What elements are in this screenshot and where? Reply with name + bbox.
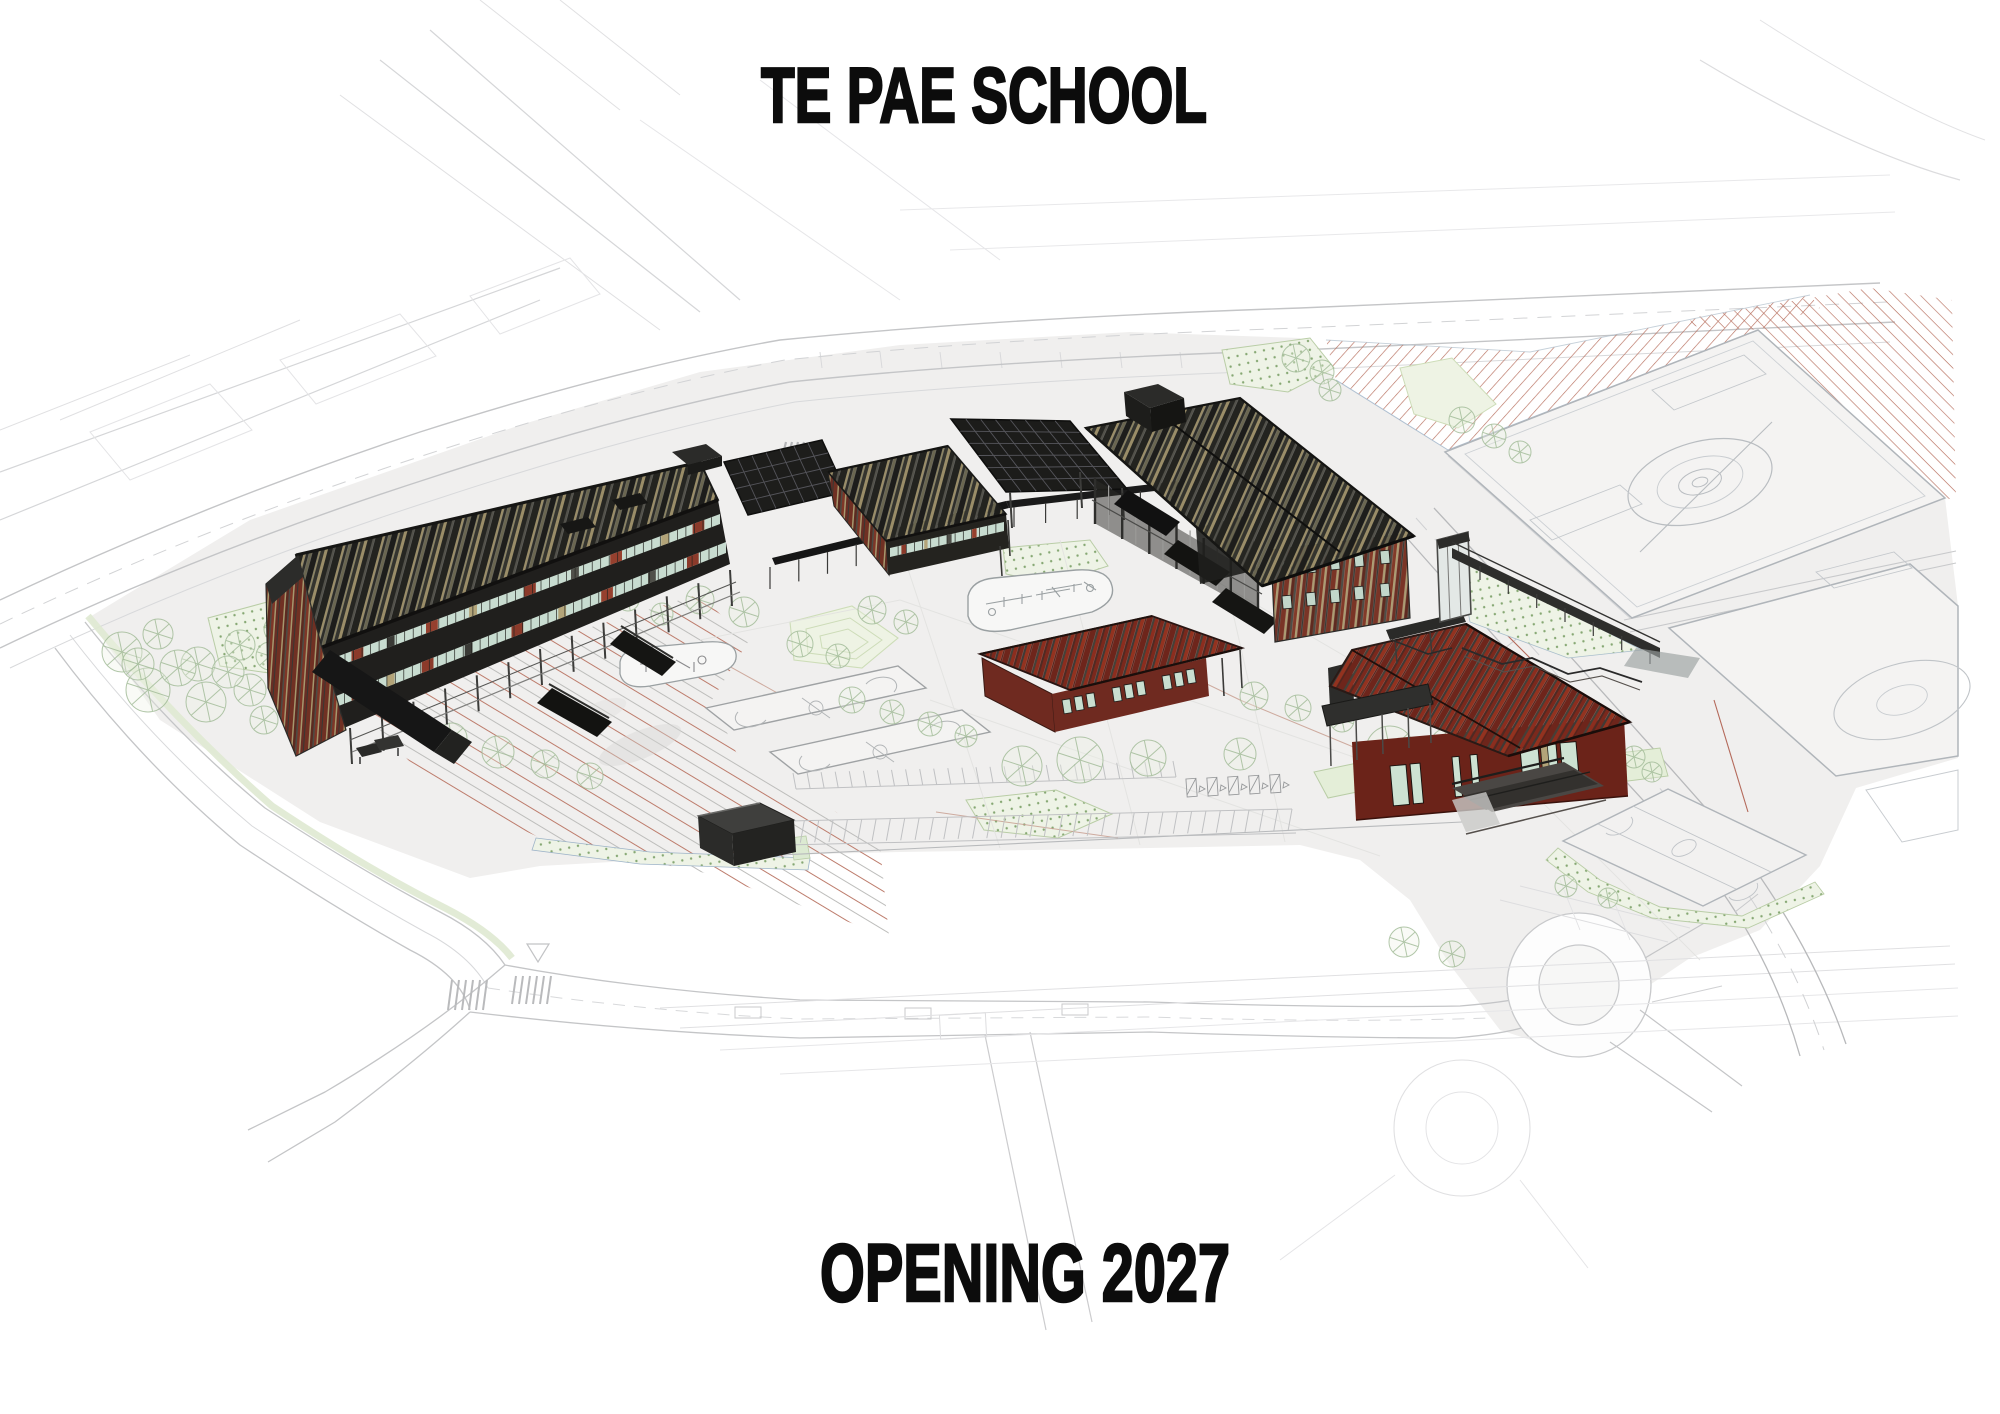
- svg-text:OPENING 2027: OPENING 2027: [820, 1228, 1230, 1319]
- svg-text:TE PAE SCHOOL: TE PAE SCHOOL: [761, 51, 1207, 139]
